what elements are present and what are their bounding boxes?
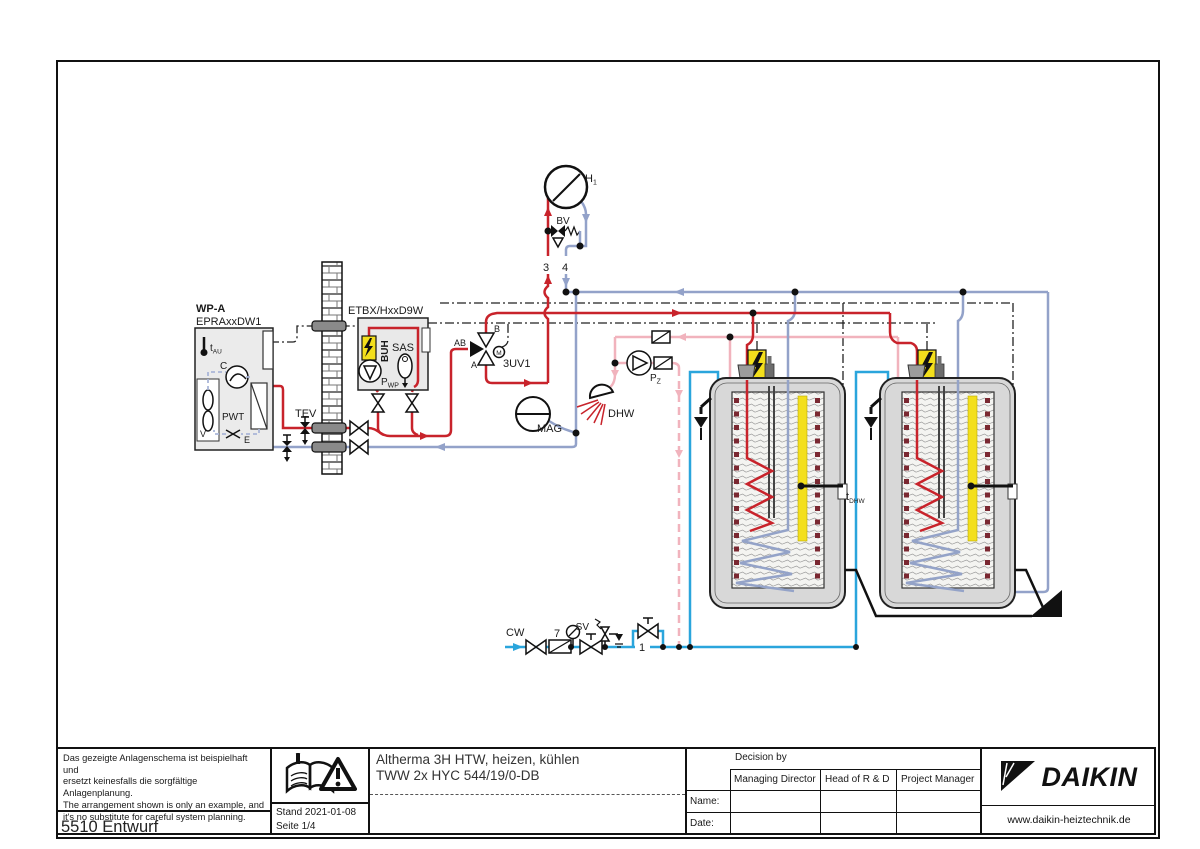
cw-label: CW xyxy=(506,627,525,639)
port-a-label: A xyxy=(471,360,477,370)
shower-icon xyxy=(590,385,613,398)
wall xyxy=(312,262,346,474)
heating-circuit-h1: H1 BV xyxy=(545,166,597,247)
compressor-label: C xyxy=(220,361,227,372)
wall-sleeve xyxy=(312,442,346,452)
indoor-unit-etbx: ETBX/HxxD9W BUH PWP SAS xyxy=(348,305,430,412)
h1-label: H1 xyxy=(585,173,597,187)
pipe-number-3: 3 xyxy=(543,262,549,274)
decision-col-project-manager: Project Manager xyxy=(896,770,982,790)
storage-tank-1 xyxy=(694,350,847,608)
revision-cell: Stand 2021-01-08 Seite 1/4 xyxy=(270,749,368,833)
expansion-vessel-mag: MAG xyxy=(516,397,562,435)
port-ab-label: AB xyxy=(454,338,466,348)
revision-date: Stand 2021-01-08 xyxy=(276,806,364,820)
air-separator-icon xyxy=(398,354,412,378)
dhw-label: DHW xyxy=(608,408,635,420)
daikin-logo: DAIKIN xyxy=(982,749,1156,806)
storage-tank-2 xyxy=(864,350,1017,608)
circulation-arrow xyxy=(677,333,686,341)
wall-sleeve xyxy=(312,423,346,433)
mag-label: MAG xyxy=(537,423,562,435)
dhw-tap-group: DHW PZ xyxy=(577,331,672,425)
pipe-number-1: 1 xyxy=(639,642,645,654)
drawing-title-cell: Altherma 3H HTW, heizen, kühlen TWW 2x H… xyxy=(368,749,685,833)
daikin-wordmark: DAIKIN xyxy=(1042,762,1138,793)
pipe-number-4: 4 xyxy=(562,262,568,274)
cw-flow-arrow xyxy=(513,643,523,651)
schematic-page: 3 4 1 WP-A EPRAxxDW1 tAU V C xyxy=(0,0,1200,849)
wall-shutoff-valves xyxy=(350,421,368,454)
drawing-title-line1: Altherma 3H HTW, heizen, kühlen xyxy=(376,752,679,768)
bv-label: BV xyxy=(556,216,570,227)
website-url: www.daikin-heiztechnik.de xyxy=(982,806,1156,826)
decision-col-head-rd: Head of R & D xyxy=(820,770,896,790)
wp-model: EPRAxxDW1 xyxy=(196,316,261,328)
tev-air-vents: TEV xyxy=(282,408,317,462)
decision-col-managing-director: Managing Director xyxy=(730,770,820,790)
sv-label: SV xyxy=(576,622,590,633)
daikin-triangle-icon xyxy=(1001,761,1037,793)
wp-name: WP-A xyxy=(196,303,225,315)
manual-warning-icons xyxy=(272,749,368,804)
valve-3uv1-label: 3UV1 xyxy=(503,358,531,370)
cold-water-inlet-group: CW 7 SV xyxy=(506,618,658,654)
buh-label: BUH xyxy=(380,340,391,362)
decision-header: Decision by xyxy=(687,749,980,769)
disclaimer-text: Das gezeigte Anlagenschema ist beispielh… xyxy=(58,749,270,812)
port-b-label: B xyxy=(494,324,500,334)
flow-arrow xyxy=(672,309,682,317)
sas-label: SAS xyxy=(392,342,414,354)
return-arrow xyxy=(674,288,684,296)
pwt-label: PWT xyxy=(222,412,244,423)
hydraulic-schematic: 3 4 1 WP-A EPRAxxDW1 tAU V C xyxy=(0,0,1200,849)
title-block: Das gezeigte Anlagenschema ist beispielh… xyxy=(56,747,1156,835)
page-number: Seite 1/4 xyxy=(276,820,364,834)
pipe-number-7: 7 xyxy=(554,628,560,640)
tev-label: TEV xyxy=(295,408,317,420)
three-way-valve-3uv1: M AB B A 3UV1 xyxy=(454,324,531,370)
brand-cell: DAIKIN www.daikin-heiztechnik.de xyxy=(980,749,1156,833)
pz-label: PZ xyxy=(650,373,662,386)
heat-pump-outdoor-unit: WP-A EPRAxxDW1 tAU V C PWT E xyxy=(195,303,273,450)
actuator-m-label: M xyxy=(496,350,501,357)
etbx-label: ETBX/HxxD9W xyxy=(348,305,424,317)
disclaimer-cell: Das gezeigte Anlagenschema ist beispielh… xyxy=(58,749,270,833)
decision-table: Decision by Managing Director Head of R … xyxy=(685,749,980,833)
evap-label: E xyxy=(244,435,250,445)
wall-sleeve xyxy=(312,321,346,331)
fan-label: V xyxy=(200,429,206,439)
drawing-title-line2: TWW 2x HYC 544/19/0-DB xyxy=(376,768,679,784)
